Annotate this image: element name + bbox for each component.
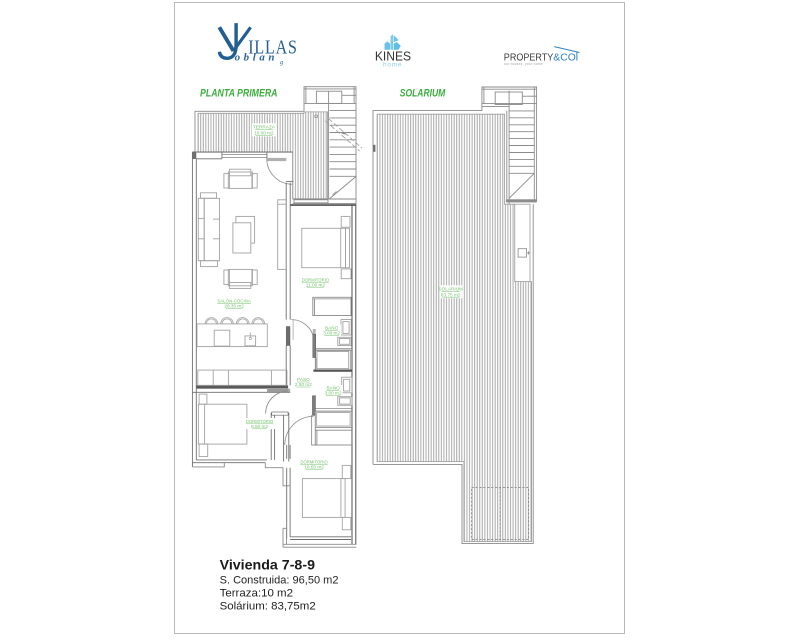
svg-text:11.00 m2: 11.00 m2 bbox=[306, 282, 326, 287]
svg-text:SOLARIUM: SOLARIUM bbox=[438, 287, 463, 292]
svg-text:Terraza:10 m2: Terraza:10 m2 bbox=[220, 587, 293, 599]
svg-text:our houses, your home: our houses, your home bbox=[504, 62, 543, 66]
svg-text:10.55 m2: 10.55 m2 bbox=[304, 465, 324, 470]
svg-text:oblan: oblan bbox=[235, 53, 279, 64]
svg-text:2.50 m2: 2.50 m2 bbox=[295, 382, 312, 387]
svg-text:3.00 m2: 3.00 m2 bbox=[325, 391, 342, 396]
svg-text:home: home bbox=[383, 62, 402, 69]
svg-text:8.50 m2: 8.50 m2 bbox=[251, 424, 268, 429]
svg-text:g: g bbox=[280, 59, 284, 66]
svg-text:&CO: &CO bbox=[553, 52, 576, 63]
svg-text:Solárium: 83,75m2: Solárium: 83,75m2 bbox=[220, 600, 316, 612]
svg-text:10.00 m2: 10.00 m2 bbox=[254, 131, 274, 136]
svg-text:3.00 m2: 3.00 m2 bbox=[323, 331, 340, 336]
svg-text:TERRAZA: TERRAZA bbox=[253, 125, 276, 130]
svg-text:83.75 m2: 83.75 m2 bbox=[441, 292, 461, 297]
svg-text:20.35 m2: 20.35 m2 bbox=[224, 304, 244, 309]
svg-text:S. Construida: 96,50 m2: S. Construida: 96,50 m2 bbox=[220, 575, 339, 587]
svg-text:SOLARIUM: SOLARIUM bbox=[400, 87, 446, 99]
svg-text:Vivienda 7-8-9: Vivienda 7-8-9 bbox=[220, 557, 315, 572]
svg-text:PLANTA PRIMERA: PLANTA PRIMERA bbox=[200, 87, 278, 99]
